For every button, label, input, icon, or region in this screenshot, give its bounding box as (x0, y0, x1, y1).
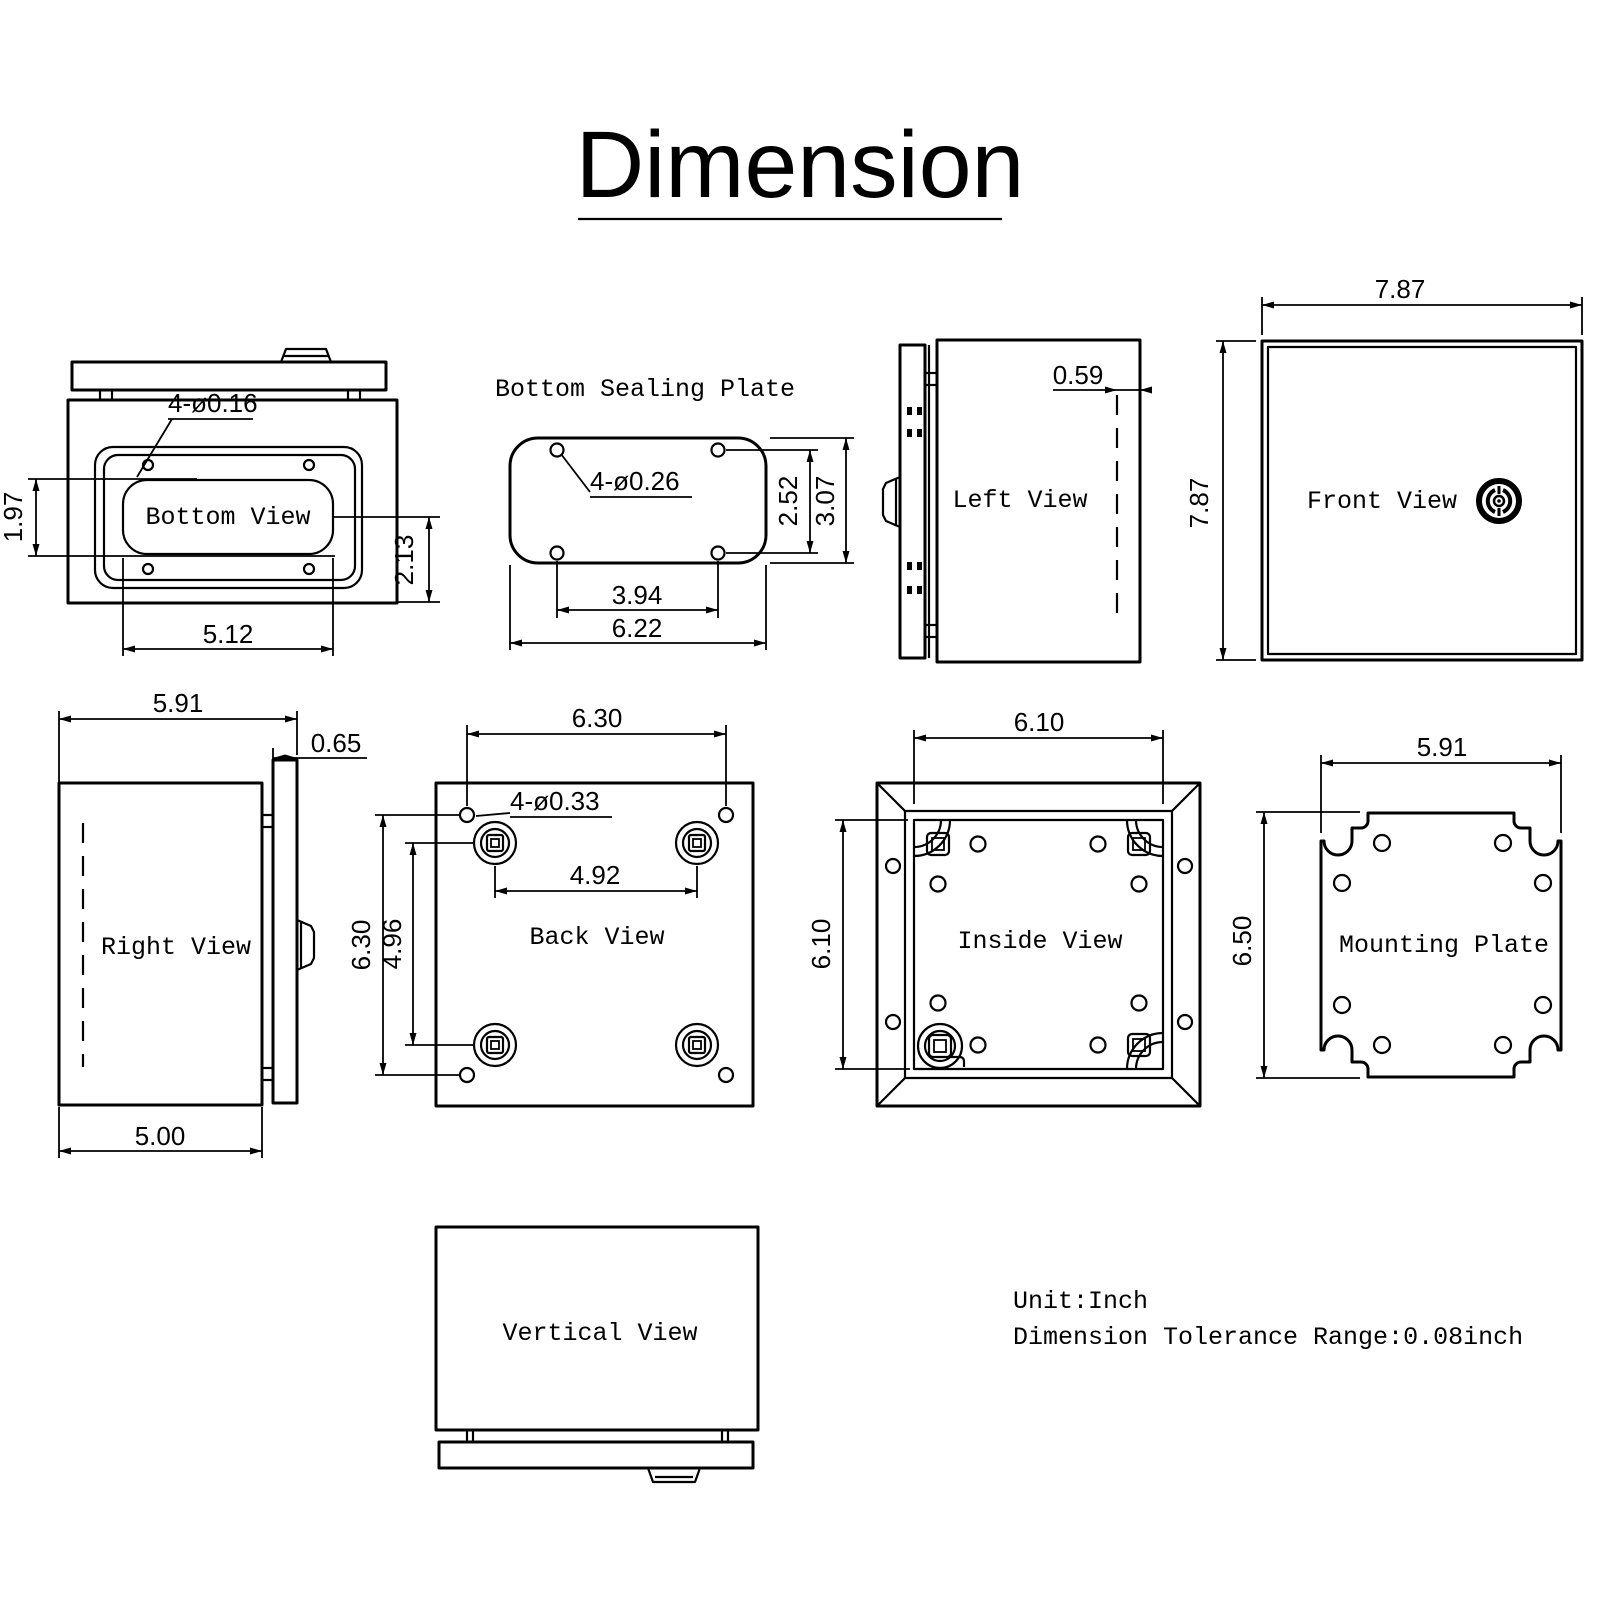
dim-text: 6.22 (612, 613, 663, 643)
page-title: Dimension (576, 112, 1025, 218)
hinge-block (907, 586, 912, 594)
dim-text: 7.87 (1184, 478, 1214, 529)
front-view-label: Front View (1307, 487, 1457, 516)
dim-text: 6.30 (346, 920, 376, 971)
dimension-drawing: Dimension Bottom View 4-ø0.16 1.97 (0, 0, 1600, 1600)
dim-text: 6.10 (1014, 707, 1065, 737)
dim-text: 7.87 (1375, 274, 1426, 304)
hinge-block (907, 429, 912, 437)
right-view-label: Right View (101, 933, 251, 962)
hinge-block (917, 586, 922, 594)
dim-text: 6.50 (1227, 916, 1257, 967)
dim-text: 3.94 (612, 580, 663, 610)
dim-text: 2.52 (773, 476, 803, 527)
dim-text: 4-ø0.26 (590, 466, 680, 496)
vertical-view-label: Vertical View (502, 1319, 697, 1348)
dim-text: 3.07 (810, 476, 840, 527)
dim-text: 5.91 (153, 688, 204, 718)
tolerance-note: Dimension Tolerance Range:0.08inch (1013, 1323, 1523, 1352)
dim-text: 1.97 (0, 492, 28, 543)
mounting-plate-label: Mounting Plate (1339, 931, 1549, 960)
left-view-label: Left View (952, 486, 1087, 515)
bottom-sealing-plate-label: Bottom Sealing Plate (495, 375, 795, 404)
dim-text: 6.30 (572, 703, 623, 733)
page-background (0, 0, 1600, 1600)
dim-text: 5.12 (203, 619, 254, 649)
dim-text: 4-ø0.16 (168, 388, 258, 418)
hinge-block (917, 429, 922, 437)
back-view-label: Back View (529, 923, 664, 952)
inside-view-label: Inside View (957, 927, 1122, 956)
dim-text: 4.96 (377, 919, 407, 970)
dim-text: 5.91 (1417, 732, 1468, 762)
bottom-view-label: Bottom View (145, 503, 310, 532)
dim-text: 6.10 (806, 919, 836, 970)
dim-text: 0.65 (311, 728, 362, 758)
unit-note: Unit:Inch (1013, 1287, 1148, 1316)
hinge-block (917, 407, 922, 415)
dim-text: 2.13 (389, 535, 419, 586)
hinge-block (917, 562, 922, 570)
title-block: Dimension (576, 112, 1025, 219)
hinge-block (907, 407, 912, 415)
dim-text: 4-ø0.33 (510, 786, 600, 816)
hinge-block (907, 562, 912, 570)
dim-text: 5.00 (135, 1121, 186, 1151)
dim-text: 4.92 (570, 860, 621, 890)
dim-text: 0.59 (1053, 360, 1104, 390)
